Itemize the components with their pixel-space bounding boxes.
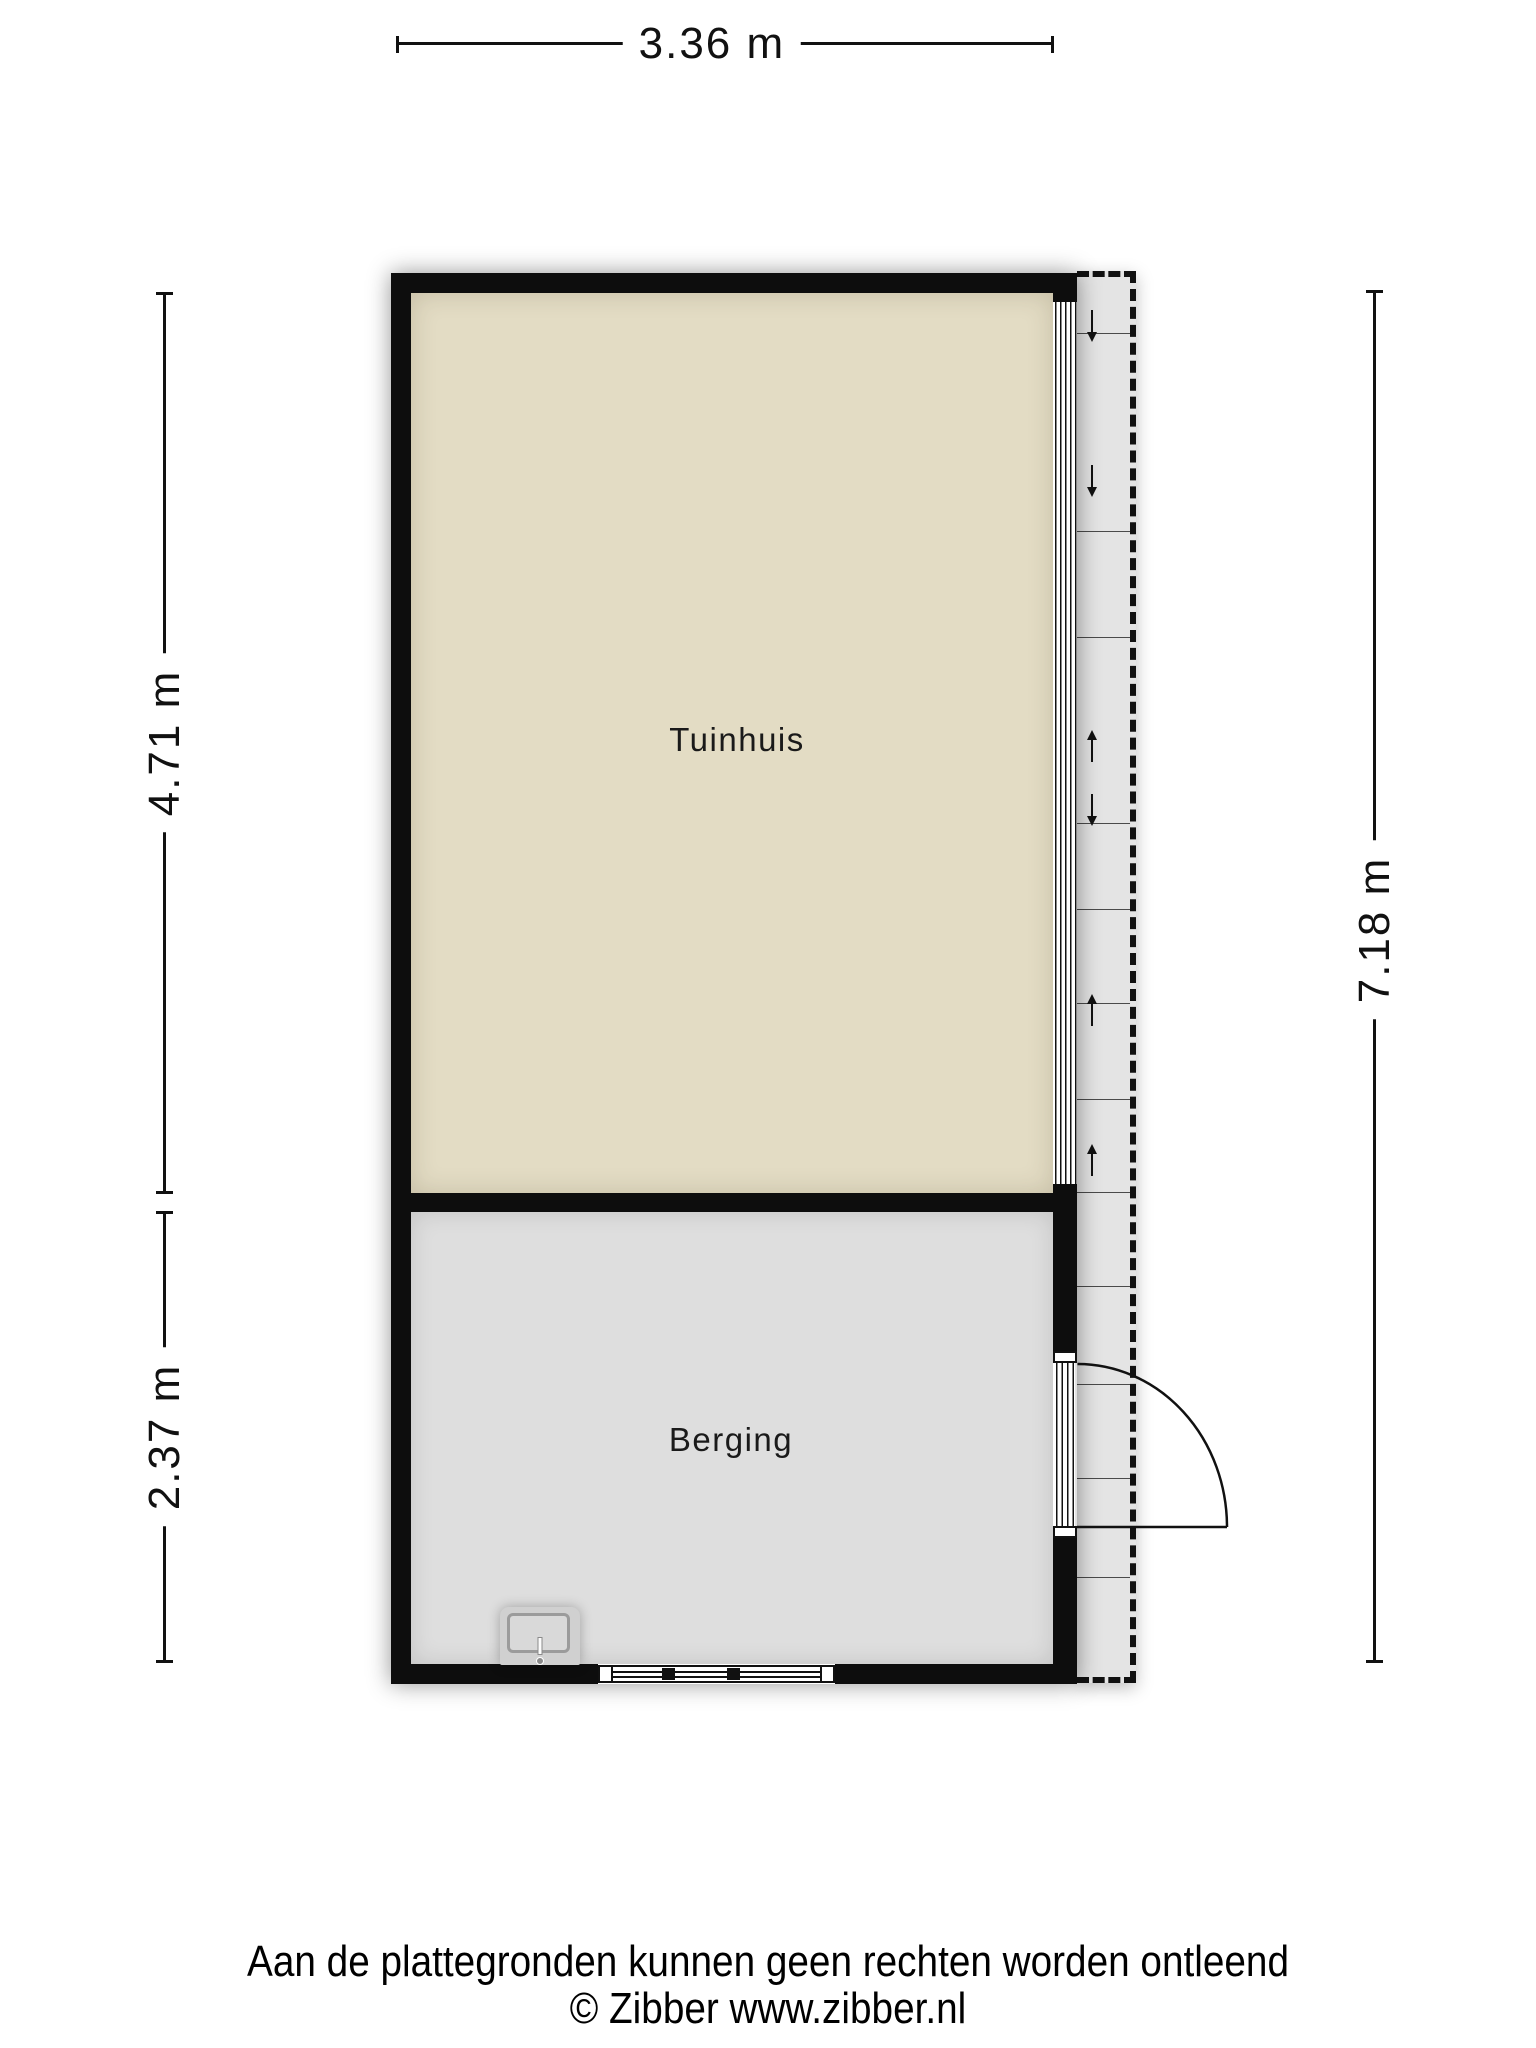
veranda-panel-divider [1077, 1192, 1130, 1193]
slide-direction-arrow-icon [1091, 310, 1093, 336]
dimension-tick [396, 36, 399, 53]
stove-handle-icon [538, 1637, 543, 1655]
dimension-tick [156, 1660, 173, 1663]
wall-bottom-left-segment [391, 1664, 598, 1684]
footer-disclaimer: Aan de plattegronden kunnen geen rechten… [92, 1938, 1444, 1985]
veranda-panel-divider [1077, 1577, 1130, 1578]
dimension-tick [1366, 290, 1383, 293]
door-jamb [1053, 1526, 1077, 1538]
glass-wall-top-cap [1053, 293, 1077, 302]
wall-right-lower-segment [1053, 1538, 1077, 1664]
slide-direction-arrow-icon [1091, 736, 1093, 762]
slide-direction-arrow-icon [1091, 465, 1093, 491]
footer-copyright: © Zibber www.zibber.nl [92, 1985, 1444, 2032]
window-bottom-wall [598, 1665, 835, 1683]
veranda-panel-divider [1077, 1286, 1130, 1287]
room-label-tuinhuis: Tuinhuis [669, 721, 805, 759]
veranda-panel-divider [1077, 823, 1130, 824]
window-jamb [820, 1665, 835, 1683]
window-mullion [727, 1668, 740, 1680]
dimension-tick [156, 292, 173, 295]
window-mullion [662, 1668, 675, 1680]
sliding-glass-wall [1053, 302, 1077, 1184]
dimension-tick [1051, 36, 1054, 53]
door-swing-arc [1077, 1363, 1229, 1529]
dimension-tick [1366, 1660, 1383, 1663]
window-glazing-line [600, 1671, 833, 1673]
veranda-panel-divider [1077, 909, 1130, 910]
dimension-tick [156, 1191, 173, 1194]
slide-direction-arrow-icon [1091, 1150, 1093, 1176]
dimension-line-right: 7.18 m [1373, 291, 1376, 1662]
window-jamb [598, 1665, 613, 1683]
dimension-label-right: 7.18 m [1348, 841, 1402, 1020]
window-glazing-line [600, 1676, 833, 1678]
veranda-panel-divider [1077, 637, 1130, 638]
slide-direction-arrow-icon [1091, 794, 1093, 820]
wall-bottom-right-segment [835, 1664, 1077, 1684]
stove-icon [500, 1607, 580, 1665]
glass-wall-bottom-cap [1053, 1184, 1077, 1193]
veranda-panel-divider [1077, 1003, 1130, 1004]
wall-middle [391, 1193, 1077, 1212]
dimension-line-left-lower: 2.37 m [163, 1212, 166, 1662]
footer: Aan de plattegronden kunnen geen rechten… [92, 1938, 1444, 2032]
veranda-panel-divider [1077, 333, 1130, 334]
room-label-berging: Berging [669, 1421, 793, 1459]
dimension-label-left-upper: 4.71 m [138, 654, 192, 833]
dimension-label-left-lower: 2.37 m [138, 1348, 192, 1527]
veranda-panel-divider [1077, 531, 1130, 532]
dimension-tick [156, 1211, 173, 1214]
dimension-line-left-upper: 4.71 m [163, 293, 166, 1193]
door-leaf [1055, 1363, 1075, 1526]
dimension-line-top: 3.36 m [397, 42, 1053, 45]
floorplan-canvas: 3.36 m 4.71 m 2.37 m 7.18 m [0, 0, 1536, 2048]
veranda-panel-divider [1077, 1099, 1130, 1100]
wall-left [391, 273, 411, 1684]
stove-knob-icon [536, 1657, 544, 1665]
slide-direction-arrow-icon [1091, 1000, 1093, 1026]
dimension-label-width: 3.36 m [623, 19, 802, 69]
wall-top [391, 273, 1077, 293]
door-jamb [1053, 1351, 1077, 1363]
wall-right-upper-segment [1053, 1193, 1077, 1353]
